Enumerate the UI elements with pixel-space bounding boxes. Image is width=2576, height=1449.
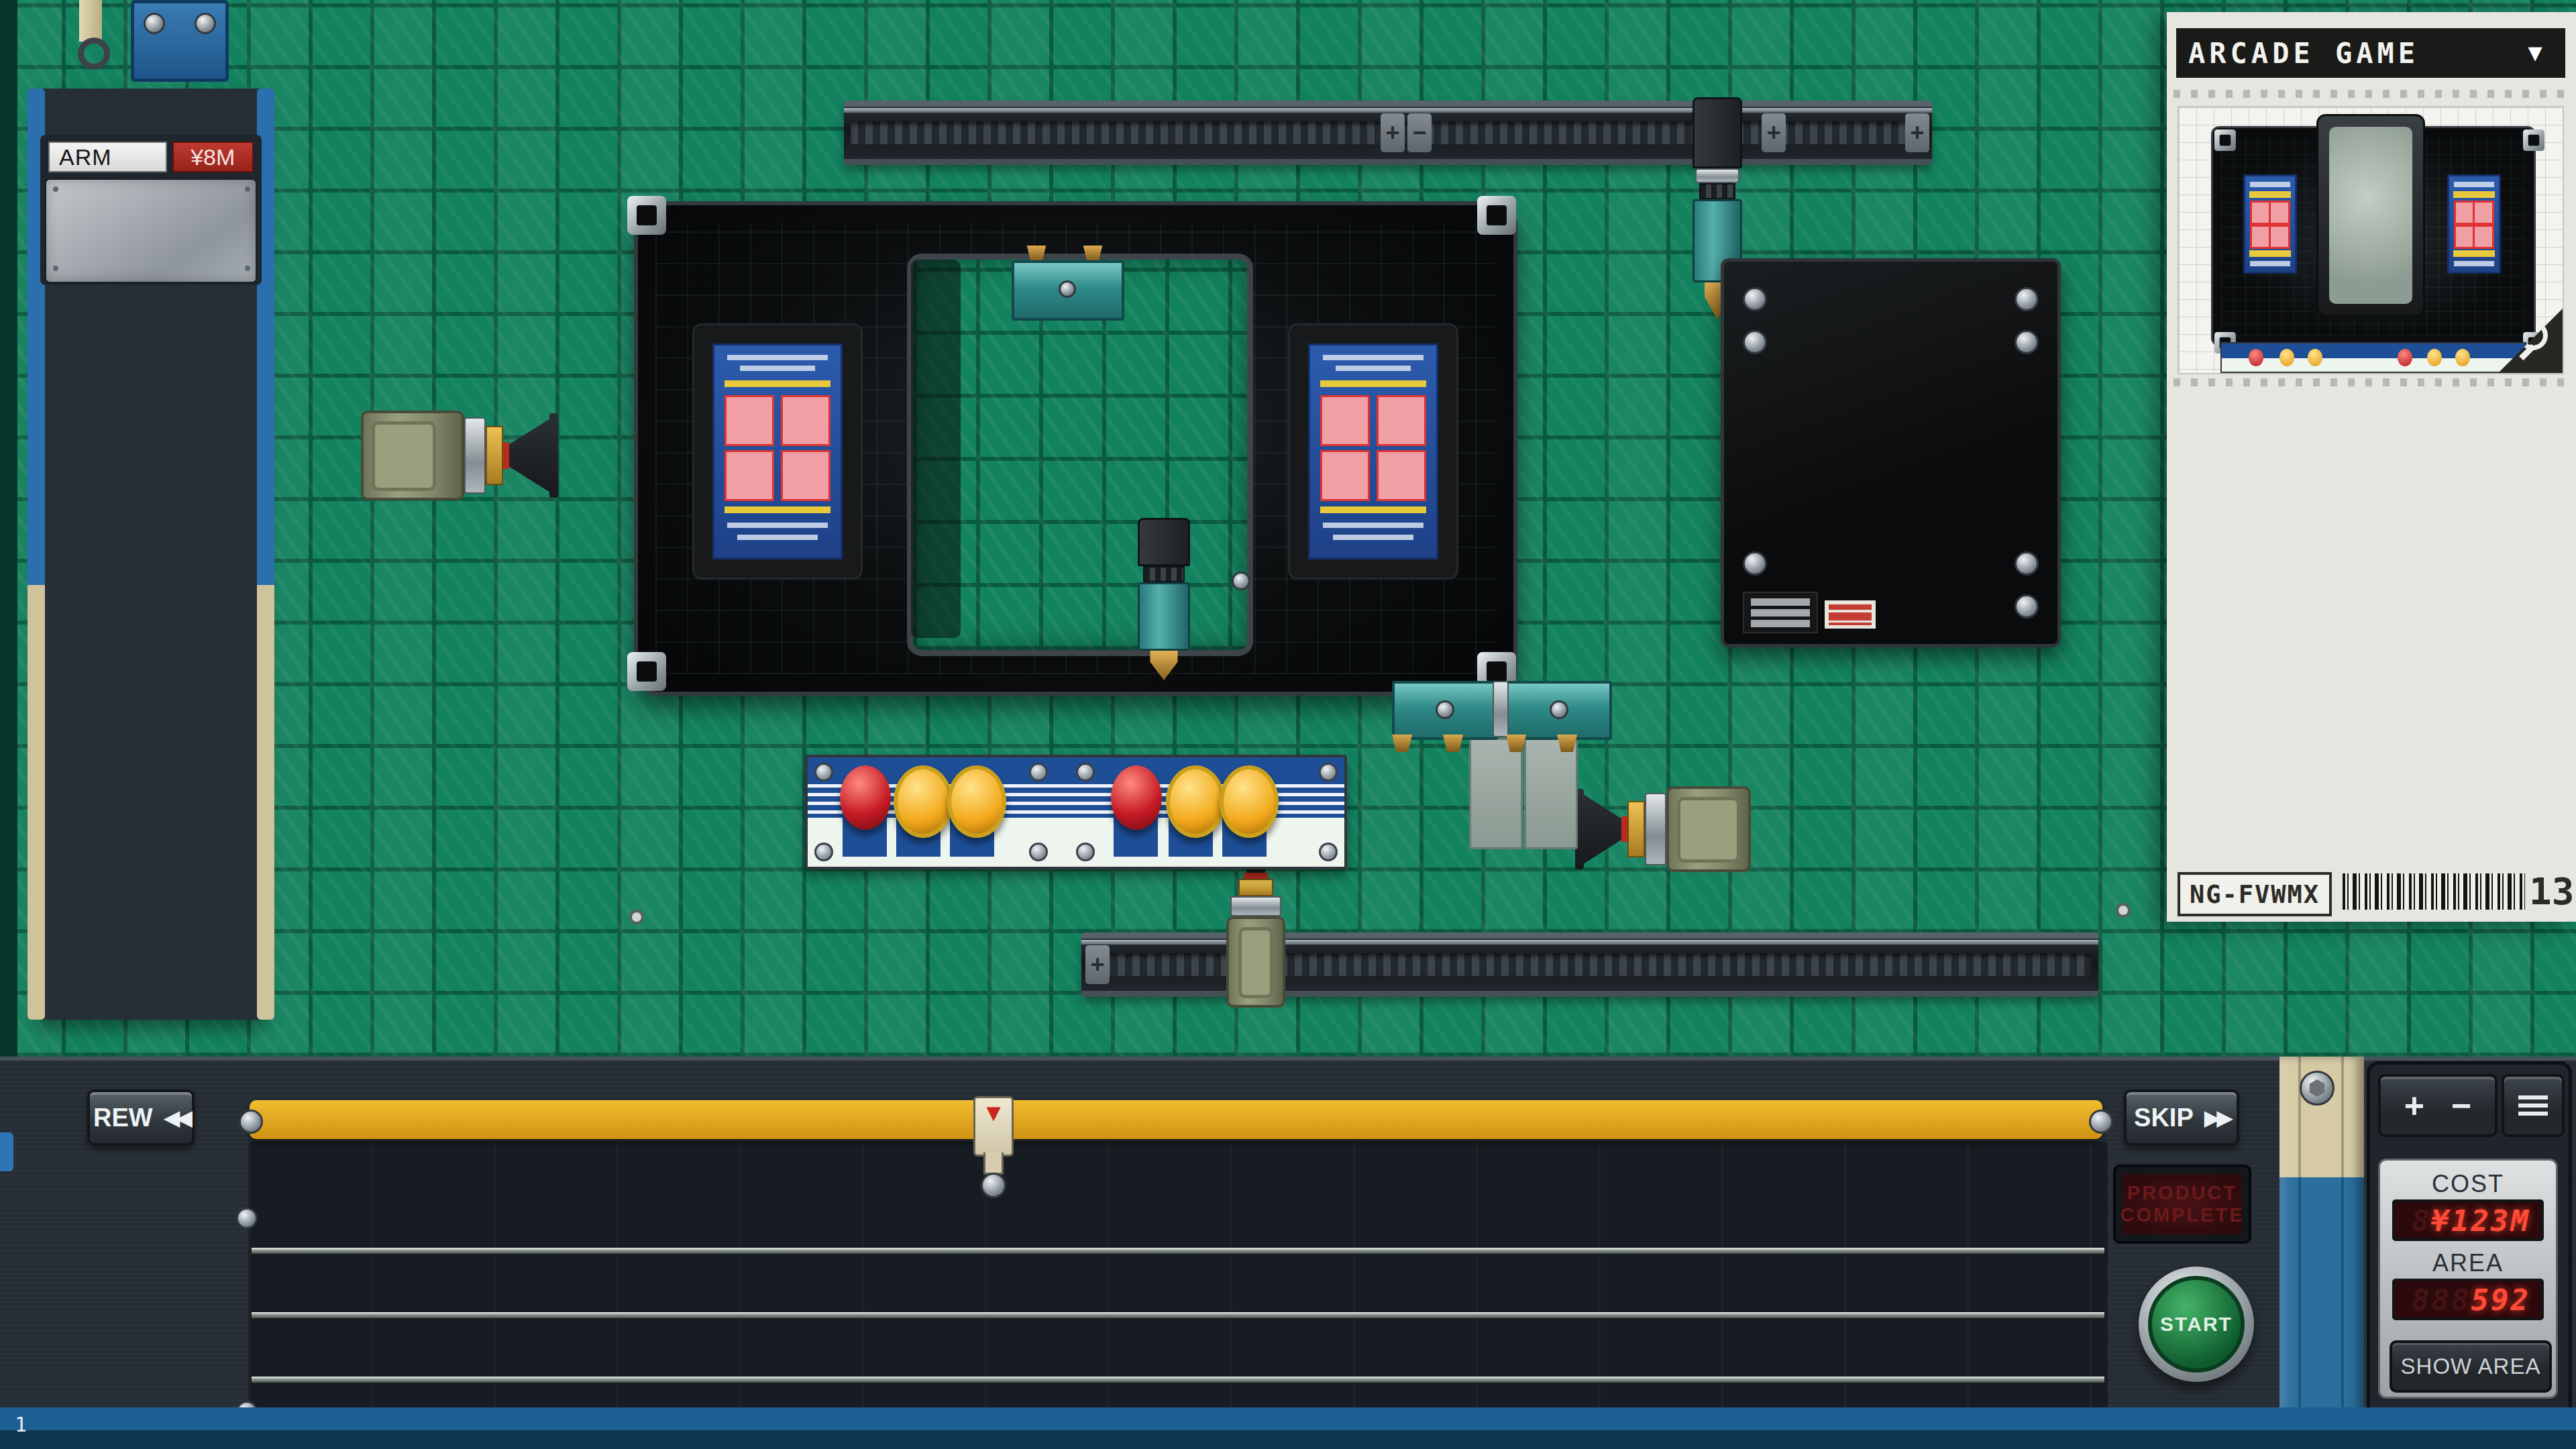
mini-control-panel — [2220, 342, 2526, 373]
area-label: AREA — [2380, 1249, 2556, 1277]
skip-button[interactable]: SKIP ▶▶ — [2124, 1089, 2239, 1146]
serial-label: NG-FVWMX — [2178, 872, 2332, 916]
yellow-button — [894, 765, 953, 838]
show-area-button[interactable]: SHOW AREA — [2390, 1340, 2552, 1393]
deck-screw — [236, 1207, 258, 1229]
board-screw — [1232, 572, 1250, 590]
rewind-button[interactable]: REW ◀◀ — [87, 1089, 195, 1146]
show-area-label: SHOW AREA — [2401, 1354, 2541, 1379]
metal-slab — [1524, 738, 1578, 849]
cost-readout-panel: COST 8¥123M AREA 888592 SHOW AREA — [2378, 1159, 2558, 1399]
cost-pod: + − COST 8¥123M AREA 888592 SHOW AREA — [2367, 1061, 2572, 1417]
corner-clip — [2214, 129, 2236, 151]
yellow-button — [947, 765, 1006, 838]
product-dropdown-button[interactable]: ▼ — [2505, 28, 2565, 78]
timeline-rail — [252, 1248, 2104, 1254]
instruction-card — [712, 343, 843, 559]
top-conveyor-track[interactable]: + − + + — [844, 101, 1932, 165]
start-button-ring: START — [2139, 1267, 2254, 1382]
metal-slab — [1469, 738, 1523, 849]
yellow-button — [1220, 765, 1279, 838]
perforation — [2173, 378, 2568, 386]
deck-divider — [2279, 1057, 2364, 1449]
playhead-marker-icon: ▼ — [981, 1098, 1006, 1128]
menu-button[interactable] — [2502, 1074, 2565, 1137]
arm-machine-c[interactable] — [1575, 786, 1751, 872]
red-button — [1111, 765, 1162, 830]
skip-icon: ▶▶ — [2204, 1105, 2229, 1130]
instruction-card — [1308, 343, 1438, 559]
machine-letter — [1238, 927, 1273, 998]
plus-icon[interactable]: + — [2404, 1085, 2424, 1126]
track-plus-mark: + — [1905, 113, 1929, 152]
cutter-disc-column[interactable] — [911, 260, 961, 638]
product-preview[interactable] — [2178, 106, 2564, 374]
corner-clip — [627, 196, 666, 235]
track-plus-mark: + — [1762, 113, 1786, 152]
corner-clip — [2523, 129, 2544, 151]
crane-post — [79, 0, 102, 42]
control-panel-part[interactable] — [805, 755, 1347, 869]
status-line: COMPLETE — [2120, 1204, 2244, 1226]
deck-base-strip — [0, 1407, 2576, 1430]
timeline-ruler[interactable] — [250, 1100, 2102, 1139]
cost-label: COST — [2380, 1170, 2556, 1198]
machine-letter — [1677, 797, 1740, 863]
mini-card — [2243, 174, 2297, 274]
shop-item-arm[interactable]: ARM¥8M — [40, 135, 262, 285]
status-display: PRODUCT COMPLETE — [2113, 1165, 2251, 1244]
floor-screw — [2116, 903, 2131, 918]
minus-icon[interactable]: − — [2451, 1085, 2471, 1126]
shop-item-price: ¥8M — [172, 142, 254, 172]
product-title: ARCADE GAME — [2176, 28, 2509, 78]
corner-index: 1 — [15, 1413, 27, 1436]
shop-item-name: ARM — [48, 142, 167, 172]
shop-item-image-arm — [44, 178, 258, 284]
area-display: 888592 — [2392, 1279, 2544, 1320]
corner-clip — [1477, 196, 1516, 235]
rewind-icon: ◀◀ — [164, 1105, 189, 1130]
chevron-down-icon: ▼ — [2523, 39, 2547, 67]
riveter-part[interactable] — [1138, 518, 1190, 680]
back-panel-part[interactable] — [1721, 258, 2061, 647]
barcode — [2343, 873, 2525, 910]
zoom-buttons[interactable]: + − — [2378, 1074, 2498, 1137]
status-line: PRODUCT — [2127, 1182, 2237, 1204]
deck-tab — [0, 1132, 13, 1171]
yellow-button — [1166, 765, 1225, 838]
red-button — [840, 765, 891, 830]
crane-hook-icon — [78, 38, 110, 70]
warning-sticker — [1825, 600, 1876, 629]
cost-ghost: 8 — [2412, 1203, 2432, 1238]
floor-screw — [629, 910, 644, 924]
rewind-label: REW — [93, 1104, 153, 1132]
timeline-rail — [252, 1312, 2104, 1318]
playhead[interactable]: ▼ — [973, 1096, 1014, 1157]
area-value: 592 — [2471, 1283, 2530, 1317]
ruler-screw — [2089, 1110, 2113, 1134]
playhead-bolt — [981, 1173, 1006, 1198]
timeline-rail — [252, 1377, 2104, 1383]
queue-count: 13 — [2529, 869, 2574, 913]
track-plus-mark: + — [1381, 113, 1405, 152]
product-sheet: ARCADE GAME ▼ — [2167, 12, 2576, 922]
cost-display: 8¥123M — [2392, 1199, 2544, 1241]
spec-label — [1743, 592, 1818, 633]
crane-box — [131, 0, 229, 82]
area-ghost: 888 — [2412, 1283, 2471, 1317]
track-plus-mark: + — [1085, 945, 1110, 984]
floor-edge — [0, 0, 17, 1057]
cost-value: ¥123M — [2432, 1203, 2530, 1238]
timeline-panel — [248, 1142, 2108, 1445]
menu-icon — [2518, 1095, 2548, 1099]
start-button[interactable]: START — [2148, 1276, 2245, 1373]
perforation — [2173, 90, 2568, 98]
arm-machine-b[interactable] — [361, 411, 558, 500]
skip-label: SKIP — [2134, 1104, 2194, 1132]
deck-base-strip — [0, 1430, 2576, 1449]
start-label: START — [2160, 1313, 2233, 1336]
mini-card — [2447, 174, 2501, 274]
machine-letter — [372, 421, 436, 491]
hex-screw — [2300, 1071, 2334, 1106]
playhead-stem — [983, 1152, 1004, 1175]
ruler-screw — [239, 1110, 263, 1134]
corner-clip — [627, 652, 666, 691]
track-minus-mark: − — [1407, 113, 1432, 152]
